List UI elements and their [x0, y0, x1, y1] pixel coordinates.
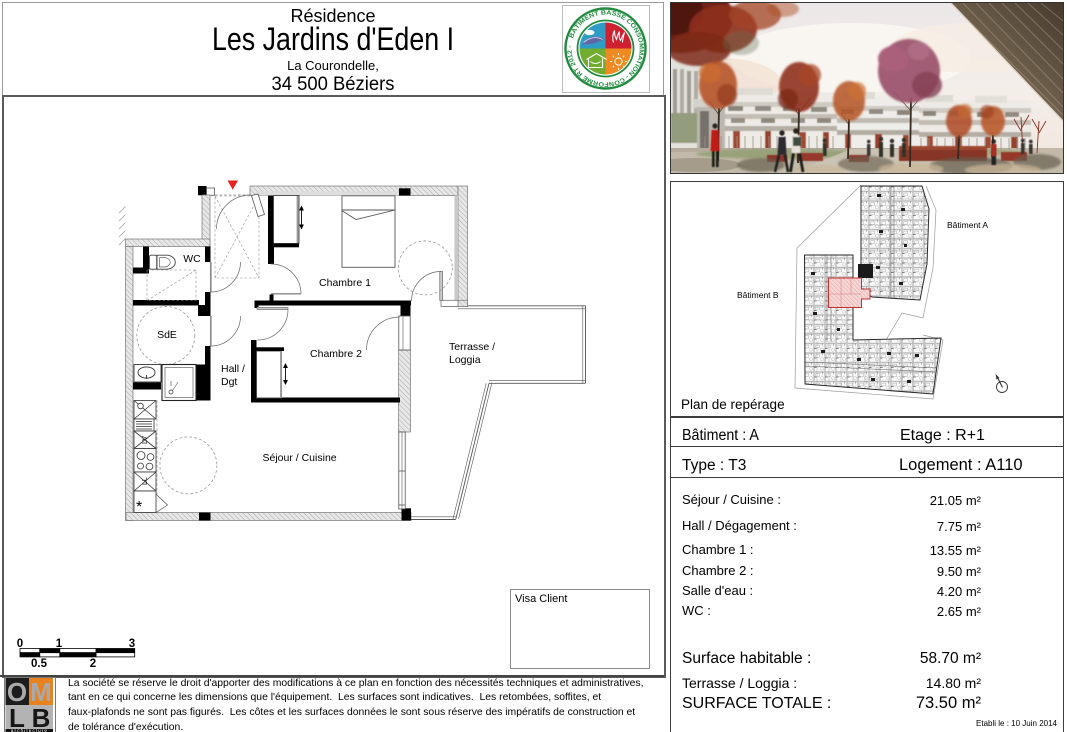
svg-text:architecture: architecture: [11, 728, 48, 732]
